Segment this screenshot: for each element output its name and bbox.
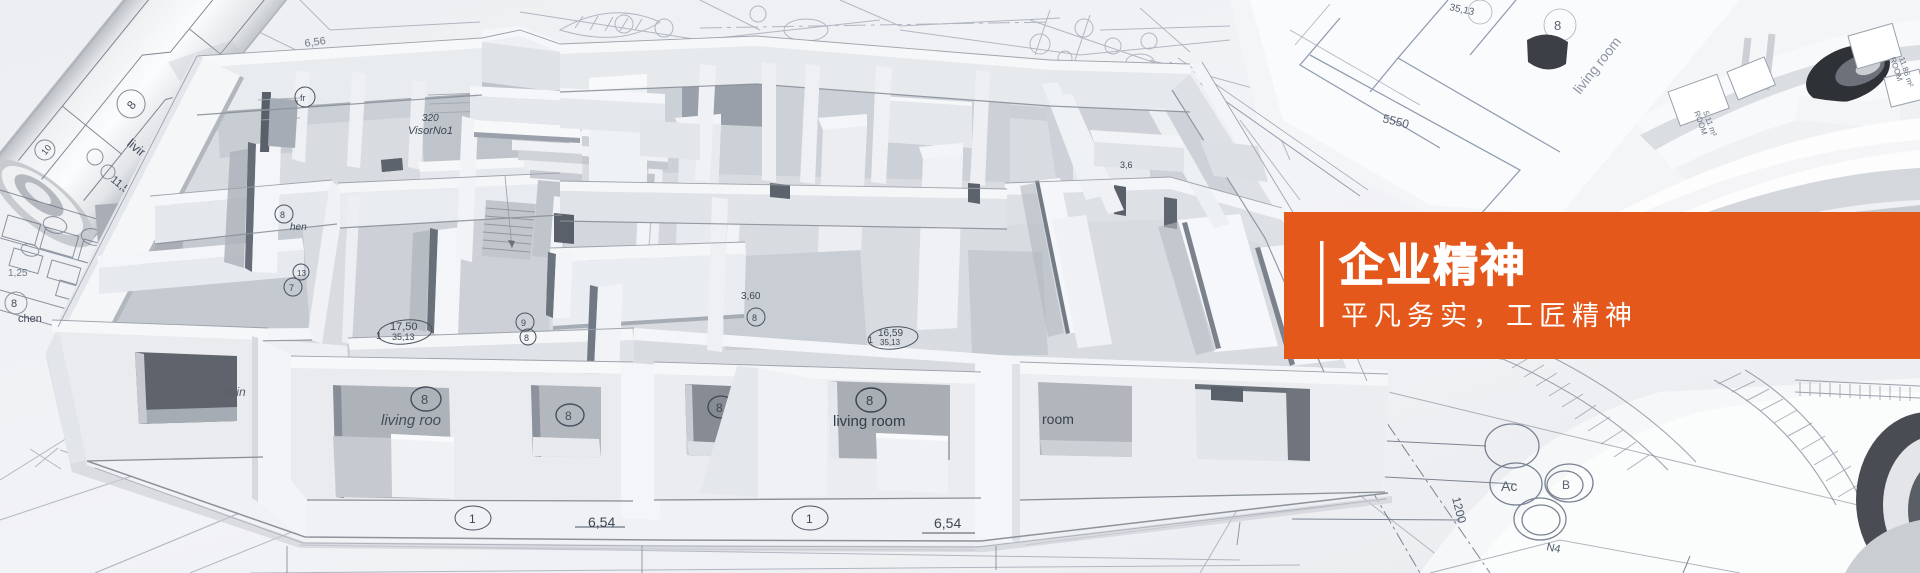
svg-text:3,60: 3,60 [741, 291, 761, 302]
svg-text:8: 8 [11, 298, 17, 310]
svg-text:企业精神: 企业精神 [1339, 240, 1527, 291]
svg-text:35,13: 35,13 [880, 338, 901, 347]
svg-text:room: room [1042, 411, 1074, 427]
svg-text:living room: living room [833, 413, 906, 430]
svg-text:8: 8 [752, 313, 757, 323]
svg-text:living roo: living roo [381, 412, 441, 429]
svg-text:1: 1 [806, 512, 813, 526]
svg-text:8: 8 [421, 392, 428, 407]
svg-text:7: 7 [289, 283, 294, 293]
svg-text:livin: livin [225, 385, 246, 399]
svg-text:8: 8 [280, 210, 285, 220]
svg-text:hen: hen [290, 222, 307, 233]
svg-text:6,54: 6,54 [934, 515, 961, 531]
svg-text:9: 9 [521, 318, 526, 328]
svg-text:8: 8 [565, 409, 572, 423]
svg-text:320: 320 [422, 113, 439, 124]
svg-text:6,54: 6,54 [588, 514, 615, 530]
svg-text:B: B [1562, 478, 1570, 492]
svg-text:8: 8 [866, 393, 873, 408]
svg-text:13: 13 [297, 269, 306, 278]
svg-text:fr: fr [300, 93, 306, 103]
svg-text:1: 1 [868, 335, 873, 345]
svg-text:Ac: Ac [1501, 478, 1517, 494]
svg-text:8: 8 [524, 333, 529, 343]
svg-text:8: 8 [1554, 18, 1561, 33]
svg-text:8: 8 [716, 401, 723, 415]
svg-text:3,6: 3,6 [1120, 160, 1133, 170]
svg-text:1: 1 [376, 331, 382, 342]
svg-text:35,13: 35,13 [392, 332, 415, 342]
svg-text:平凡务实，工匠精神: 平凡务实，工匠精神 [1341, 301, 1638, 331]
svg-text:VisorNo1: VisorNo1 [408, 125, 453, 137]
svg-text:1: 1 [469, 512, 476, 526]
svg-text:chen: chen [18, 313, 42, 325]
